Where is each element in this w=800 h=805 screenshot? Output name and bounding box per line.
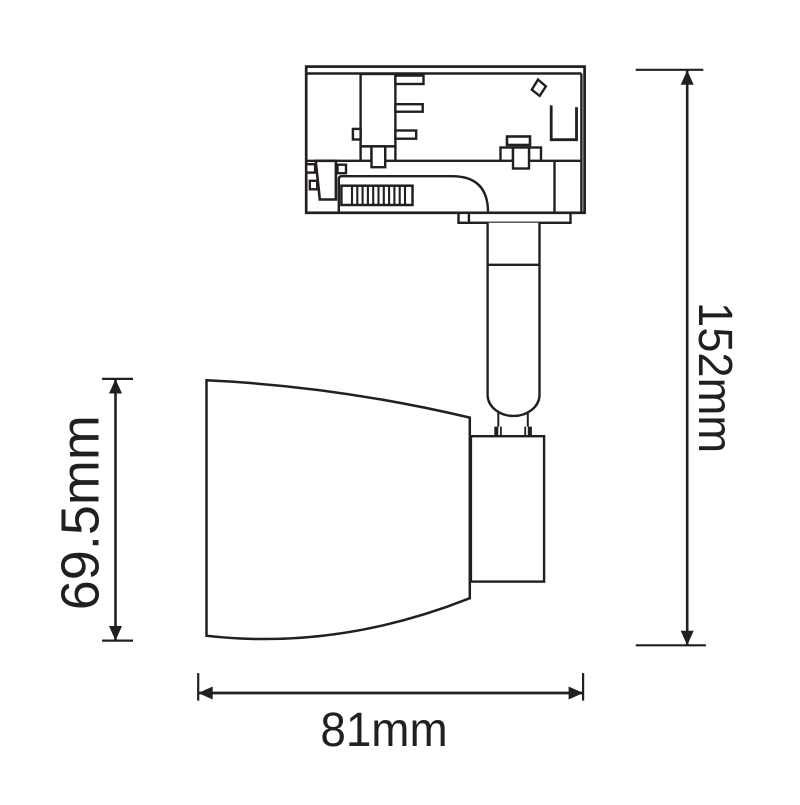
svg-text:81mm: 81mm xyxy=(320,703,447,756)
svg-text:69.5mm: 69.5mm xyxy=(51,415,111,610)
svg-text:152mm: 152mm xyxy=(689,302,742,453)
